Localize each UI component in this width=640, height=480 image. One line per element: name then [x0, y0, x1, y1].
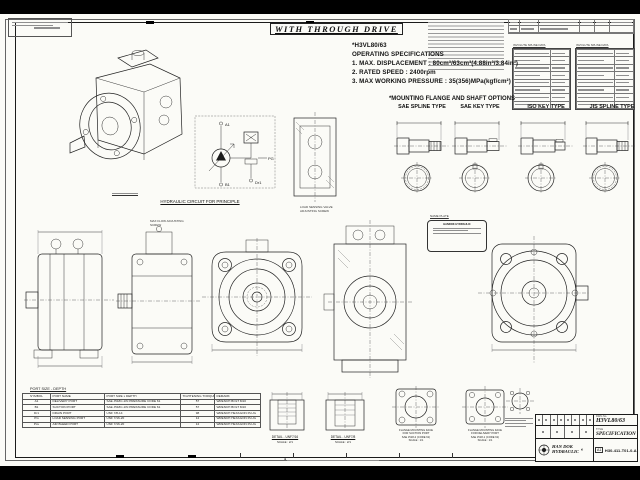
company-logo-icon	[538, 444, 550, 456]
operating-specs: *H3VL80/63 OPERATING SPECIFICATIONS 1. M…	[352, 41, 518, 86]
section-view-drawing	[314, 220, 426, 380]
port-table-title: PORT SIZE - DEPTH	[30, 387, 66, 391]
spline-table-title: INVOLUTE SPLINE DATA	[576, 43, 609, 47]
center-mark	[188, 455, 196, 458]
projection-symbol-icon: ◐	[581, 448, 584, 453]
detail2-label: DETAIL - UNF7/8	[331, 435, 356, 439]
iso-view-note	[112, 193, 138, 196]
jis-spline-shaft-drawing	[582, 112, 636, 200]
title-value: SPECIFICATION	[596, 431, 637, 437]
load-sensing-callout: LOAD SENSING VALVE ADJUSTING SCREW	[300, 206, 344, 213]
zone-tick	[240, 453, 241, 458]
title-area: TITLE SPECIFICATION	[594, 426, 637, 439]
spec-line: 2. RATED SPEED : 2400rpm	[352, 68, 518, 77]
detail1-label: DETAIL - UNF7/16	[272, 435, 298, 439]
detail2-scale: SCALE : 2/1	[335, 440, 351, 444]
drawing-number: H30-411-T01-0-A	[605, 448, 637, 453]
stamp-microtext	[34, 27, 60, 28]
circuit-port-a1-label: A1	[225, 122, 231, 127]
company-area: HAN DOK HYDRAULIC ◐	[536, 439, 593, 461]
model-number: *H3VL80/63	[352, 41, 518, 50]
sheet-size: A1	[595, 447, 603, 453]
side-view-left-drawing	[24, 226, 116, 374]
isometric-pump-drawing	[52, 40, 204, 192]
circuit-port-b1-label: B1	[225, 182, 231, 187]
detail-unf716-drawing	[258, 390, 312, 434]
port-table-row: Psv AIR BLEED PORT UNF 7/16-20 12 WRENCH…	[23, 422, 261, 428]
company-name: HAN DOK HYDRAULIC	[552, 445, 579, 455]
revision-table	[508, 19, 634, 34]
options-heading: *MOUNTING FLANGE AND SHAFT OPTIONS	[352, 96, 552, 102]
center-mark	[146, 21, 154, 24]
port-size: UNF 7/16-20	[105, 422, 181, 428]
delivery-flange-label: FLANGE MOUNTING FACE FOR DELIVERY PORT S…	[468, 429, 502, 443]
center-mark	[116, 455, 124, 458]
port-torque: 12	[181, 422, 215, 428]
footer-copyright: ●	[284, 458, 380, 462]
dwg-no-value: H3VL80/63	[596, 418, 637, 425]
zone-tick	[452, 453, 453, 458]
spec-line: 1. MAX. DISPLACEMENT : 80cm³/63cm³(4.88i…	[352, 59, 518, 68]
sheet-title-box: WITH THROUGH DRIVE	[270, 23, 403, 35]
circuit-port-dr-label: Dr1	[255, 180, 262, 185]
stamp-microtext	[12, 22, 68, 23]
spec-line: 3. MAX WORKING PRESSURE : 35(356)MPa(kgf…	[352, 77, 518, 86]
specs-heading: OPERATING SPECIFICATIONS	[352, 50, 518, 59]
circuit-caption: HYDRAULIC CIRCUIT FOR PRINCIPLE	[138, 199, 262, 204]
through-drive-section-drawing	[288, 110, 342, 204]
suction-flange-label: FLANGE MOUNTING FACE FOR SUCTION PORT SA…	[399, 429, 433, 443]
dwg-no-area: DWG No. H3VL80/63	[594, 415, 637, 426]
iso-key-shaft-drawing	[517, 112, 575, 200]
sae-key-shaft-drawing	[451, 112, 509, 200]
shaft-type-label-iso-key: ISO KEY TYPE	[527, 104, 564, 110]
title-block-approval-cells	[536, 426, 593, 439]
name-plate-callout: NAME PLATE	[430, 215, 449, 219]
shaft-type-label-jis-spline: JIS SPLINE TYPE	[590, 104, 635, 110]
rear-view-drawing	[478, 236, 590, 366]
port-table: SYMBOL PORT NAME PORT SIZE x DEPTH TIGHT…	[22, 393, 261, 428]
side-view-drawing	[116, 224, 202, 374]
port-name: AIR BLEED PORT	[51, 422, 105, 428]
zone-tick	[399, 453, 400, 458]
company-name-line2: HYDRAULIC	[552, 450, 579, 455]
title-block-left: HAN DOK HYDRAULIC ◐	[536, 415, 594, 461]
circuit-port-pg-label: PG	[268, 156, 274, 161]
hydraulic-circuit-drawing: A1 B1 Dr1 PG	[193, 114, 279, 196]
detail-unf78-drawing	[316, 390, 370, 434]
number-area: A1 H30-411-T01-0-A	[594, 439, 637, 461]
suction-flange-scale: SCALE : 1/1	[399, 439, 433, 442]
delivery-flange-scale: SCALE : 1/1	[468, 439, 502, 442]
stamp-microtext	[12, 25, 53, 26]
suction-flange-drawing	[392, 386, 440, 428]
title-block-rev-cells	[536, 415, 593, 426]
mini-flange-note	[504, 416, 534, 428]
delivery-flange-drawing	[460, 386, 510, 428]
detail1-scale: SCALE : 2/1	[277, 440, 293, 444]
sae-spline-shaft-drawing	[393, 112, 451, 200]
front-view-drawing	[202, 238, 312, 358]
port-remark: WRENCH HEXAGON PLUG	[215, 422, 261, 428]
title-block: HAN DOK HYDRAULIC ◐ DWG No. H3VL80/63 TI…	[535, 414, 638, 462]
document-stamp	[8, 18, 72, 37]
port-symbol: Psv	[23, 422, 51, 428]
shaft-type-label-sae-key: SAE KEY TYPE	[460, 104, 499, 110]
drawing-sheet: WITH THROUGH DRIVE INVOLUTE SPLINE DATA …	[0, 14, 640, 466]
shaft-type-label-sae-spline: SAE SPLINE TYPE	[398, 104, 446, 110]
name-plate-brand: HANDOK HYDRAULIC	[432, 223, 482, 226]
screenshot-root: { "frame": { "title_box": "WITH THROUGH …	[0, 0, 640, 480]
title-block-right: DWG No. H3VL80/63 TITLE SPECIFICATION A1…	[594, 415, 637, 461]
mini-flange-drawing	[506, 388, 534, 414]
spline-data-table-right	[575, 48, 635, 110]
